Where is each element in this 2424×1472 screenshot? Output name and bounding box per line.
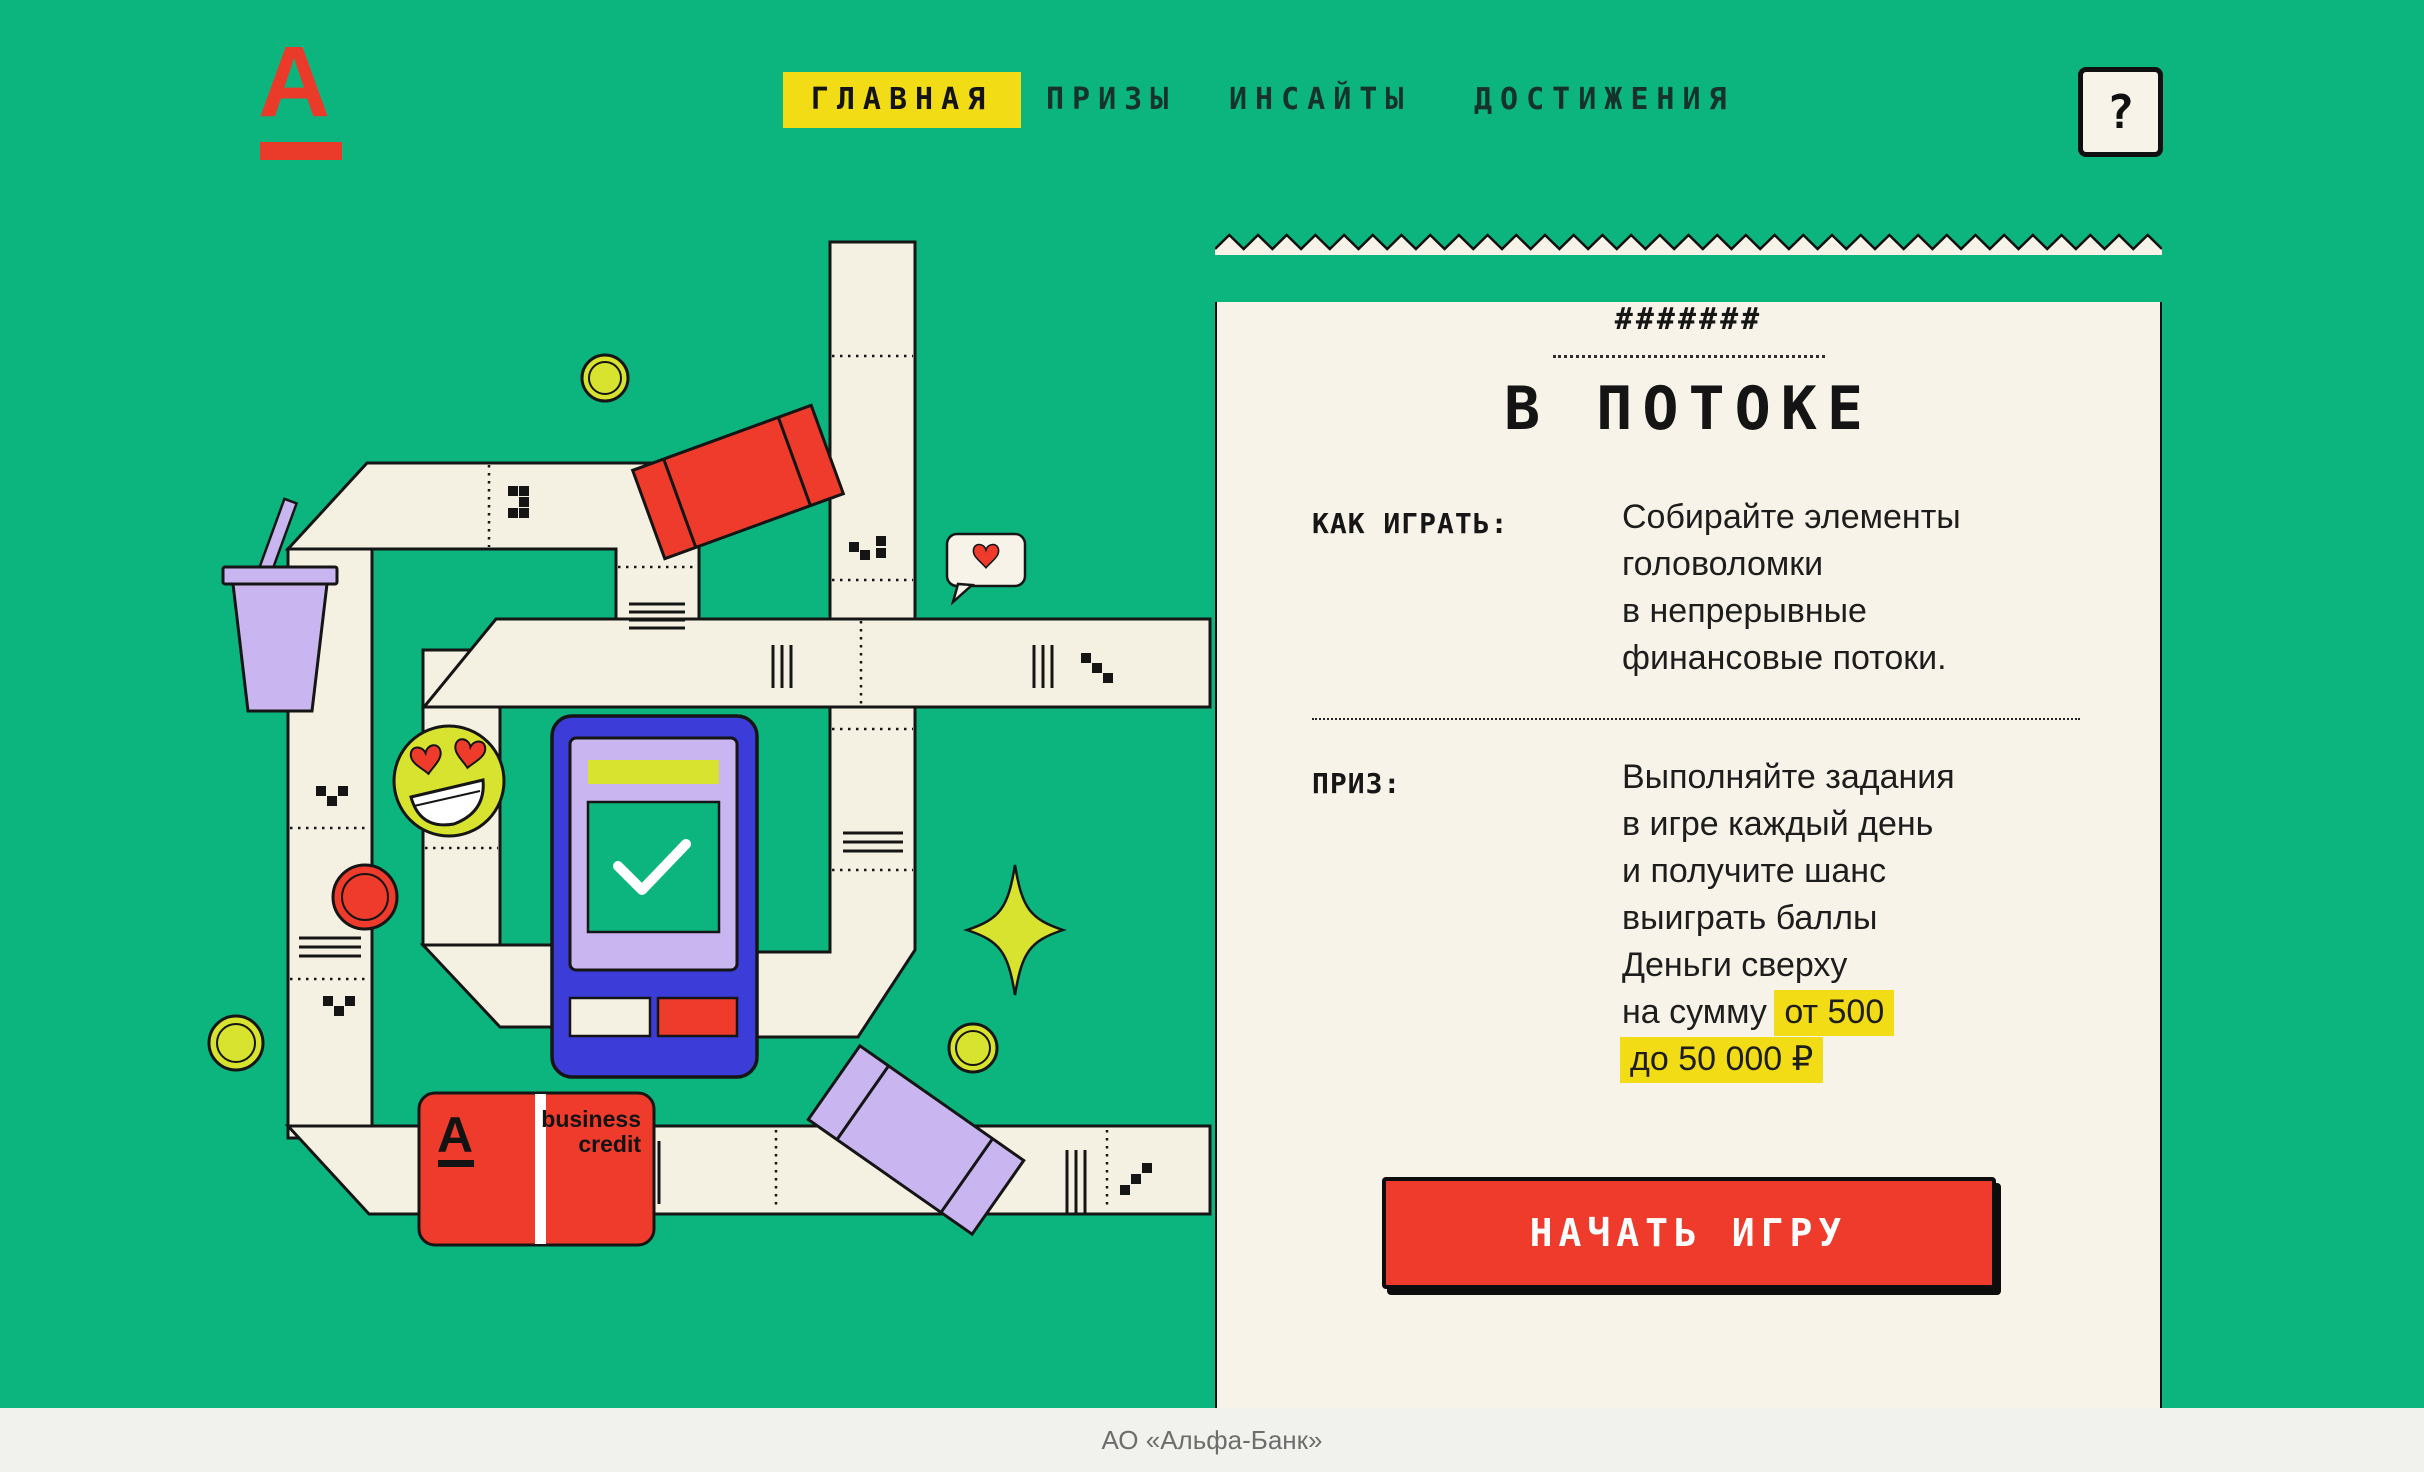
card-label-line2: credit [578, 1131, 641, 1157]
nav-item-home[interactable]: ГЛАВНАЯ [783, 72, 1021, 128]
board-game-illustration: А business credit [0, 0, 1230, 1472]
masked-code: ####### [1217, 302, 2160, 337]
card-label-line1: business [541, 1106, 641, 1132]
logo-underline [260, 142, 342, 160]
nav-item-prizes[interactable]: ПРИЗЫ [1046, 72, 1176, 128]
section-divider [1312, 718, 2080, 720]
bank-card-illustration: А business credit [419, 1093, 654, 1245]
question-mark-icon: ? [2107, 85, 2135, 139]
sparkle-icon [967, 865, 1063, 995]
nav-item-achievements[interactable]: ДОСТИЖЕНИЯ [1474, 72, 1735, 128]
logo-letter: А [258, 30, 368, 134]
card-logo-letter: А [437, 1107, 473, 1163]
help-button[interactable]: ? [2078, 67, 2163, 157]
dotted-separator [1553, 355, 1825, 358]
how-to-label: КАК ИГРАТЬ: [1312, 494, 1622, 682]
how-to-section: КАК ИГРАТЬ: Собирайте элементыголоволомк… [1312, 494, 2080, 682]
prize-section: ПРИЗ: Выполняйте заданияв игре каждый де… [1312, 754, 2080, 1083]
pipe-middle-connector [423, 945, 552, 1027]
footer-text: АО «Альфа-Банк» [1102, 1425, 1323, 1455]
receipt-panel: ####### В ПОТОКЕ КАК ИГРАТЬ: Собирайте э… [1215, 233, 2162, 1408]
start-game-button[interactable]: НАЧАТЬ ИГРУ [1382, 1177, 1996, 1289]
prize-label: ПРИЗ: [1312, 754, 1622, 1083]
nav-item-insights[interactable]: ИНСАЙТЫ [1229, 72, 1411, 128]
game-title: В ПОТОКЕ [1217, 374, 2160, 444]
footer: АО «Альфа-Банк» [0, 1408, 2424, 1472]
receipt-zigzag-edge [1215, 233, 2162, 255]
red-parcel [633, 405, 844, 558]
heart-bubble-icon [947, 534, 1025, 602]
emoji-heart-eyes-icon [394, 726, 504, 836]
prize-text: Выполняйте заданияв игре каждый деньи по… [1622, 754, 1955, 1083]
how-to-text: Собирайте элементыголоволомкив непрерывн… [1622, 494, 1961, 682]
page: { "logo": { "letter": "А" }, "nav": { "i… [0, 0, 2424, 1472]
alfa-bank-logo: А [258, 30, 368, 160]
pipe-vertical-turn [757, 707, 915, 1037]
terminal-illustration [552, 716, 757, 1077]
